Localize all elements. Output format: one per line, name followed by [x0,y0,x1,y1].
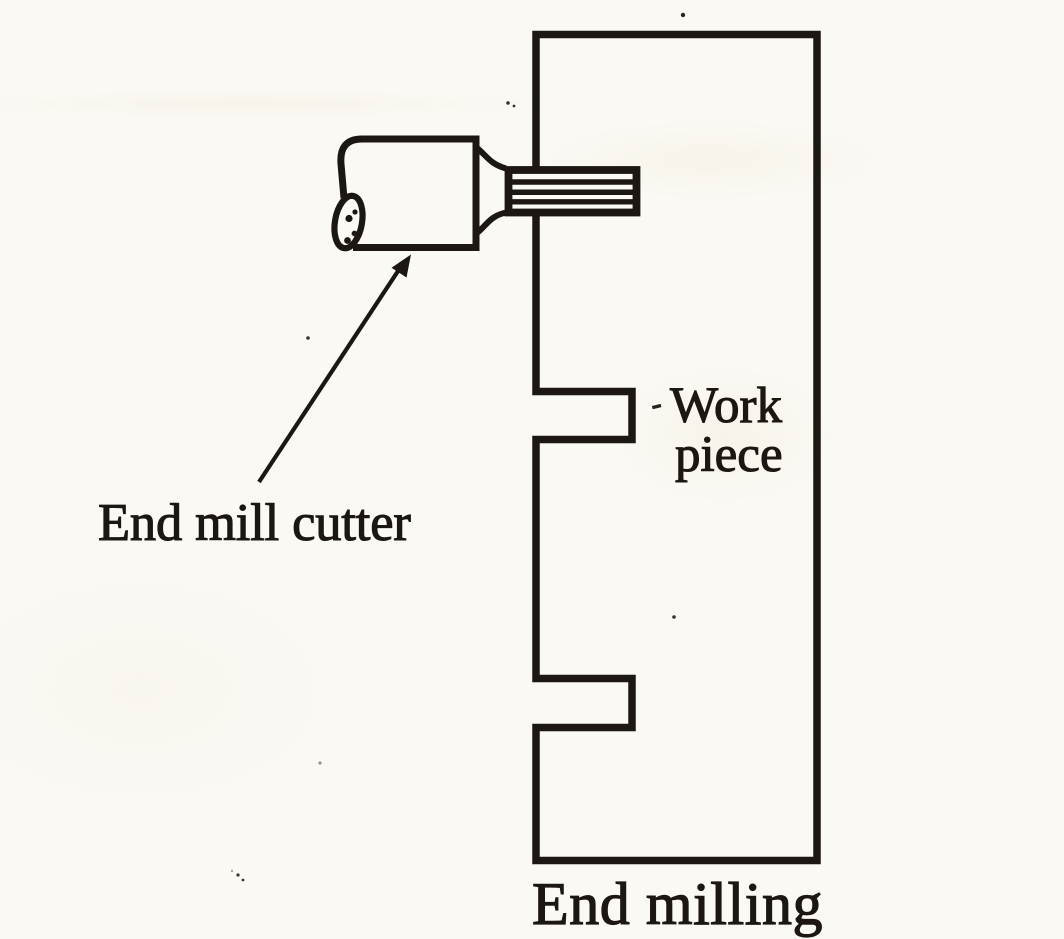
svg-text:End mill cutter: End mill cutter [98,494,411,552]
svg-text:End milling: End milling [532,871,823,937]
svg-text:Work: Work [670,378,783,434]
svg-text:piece: piece [675,427,783,483]
